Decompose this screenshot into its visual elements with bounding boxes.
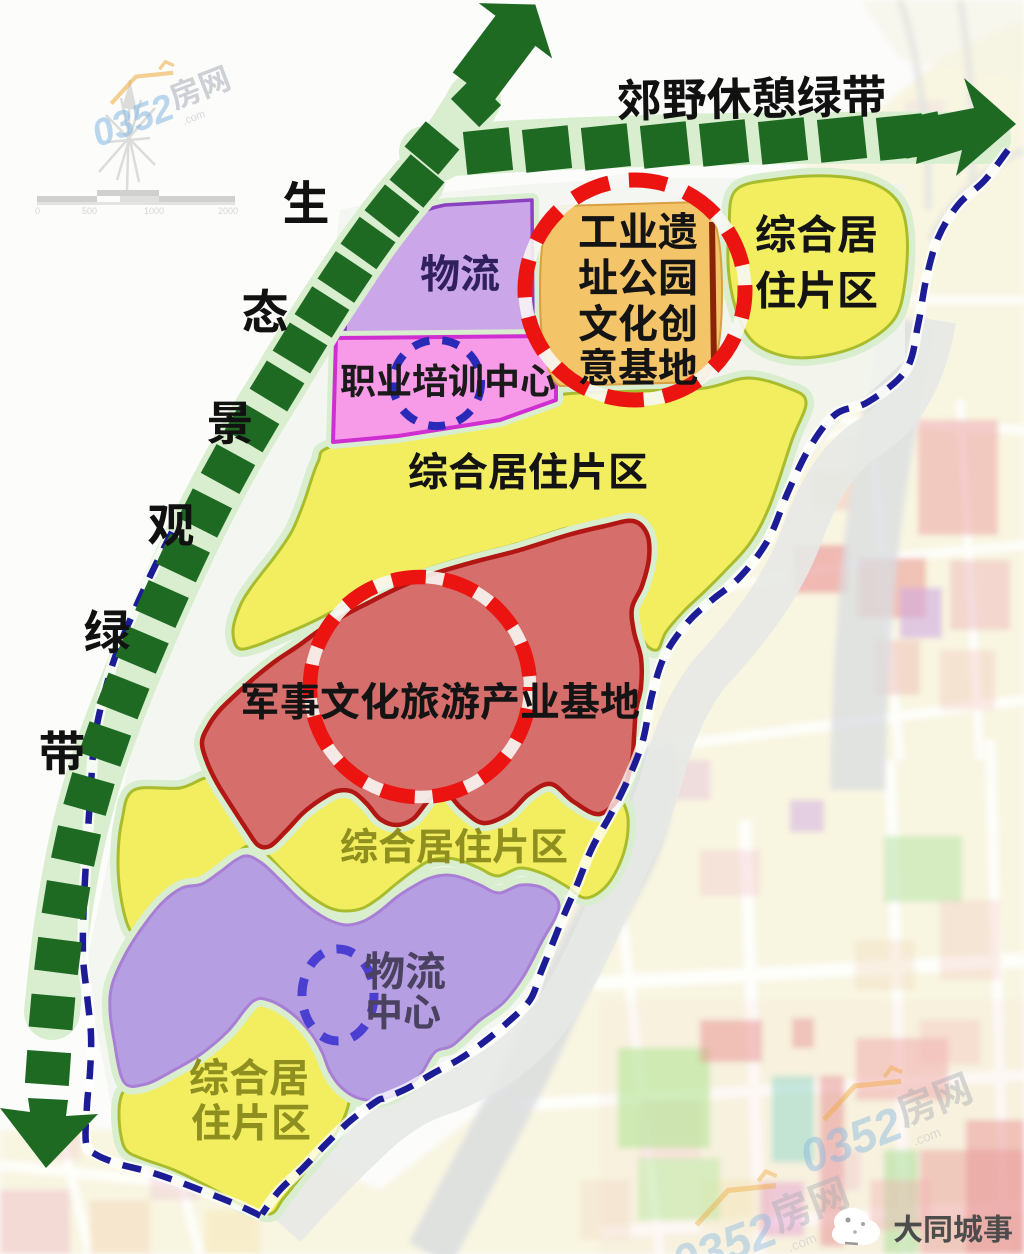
svg-text:500: 500	[82, 206, 97, 216]
svg-text:2000: 2000	[218, 206, 238, 216]
svg-text:1000: 1000	[144, 206, 164, 216]
svg-text:0: 0	[35, 206, 40, 216]
